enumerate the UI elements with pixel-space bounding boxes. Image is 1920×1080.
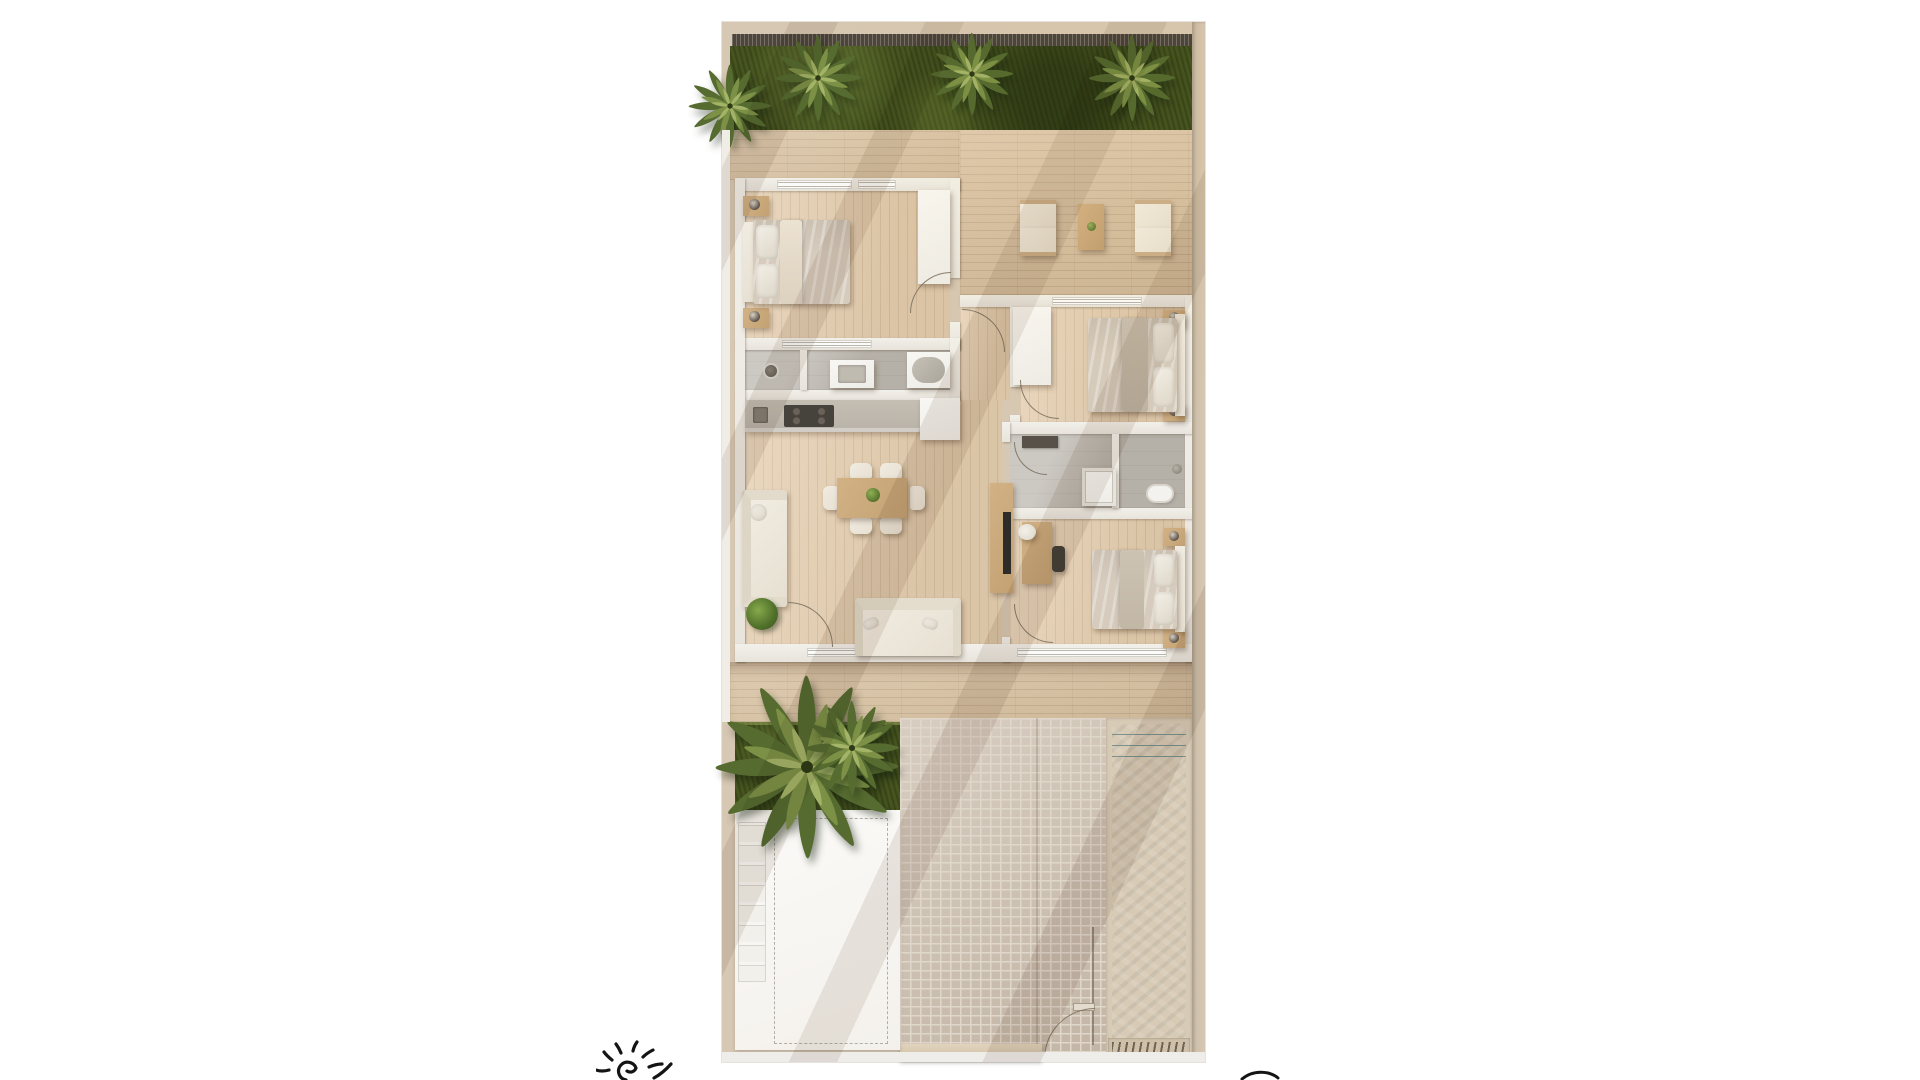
bed-headboard xyxy=(743,222,753,302)
palm-tree-icon xyxy=(688,64,772,148)
dining-chair xyxy=(880,518,902,534)
pool-steps xyxy=(1112,734,1186,758)
pool-water xyxy=(1112,724,1186,1050)
dining-chair xyxy=(850,463,872,479)
pillow xyxy=(1153,323,1174,363)
pillow xyxy=(1154,592,1174,625)
toilet xyxy=(1148,486,1172,501)
throw-blanket xyxy=(1122,318,1148,412)
lot-wall-right xyxy=(1192,22,1205,1062)
sliding-glass-door xyxy=(1017,648,1167,657)
lounge-armchair xyxy=(1020,228,1056,256)
bathtub-basin xyxy=(912,357,945,383)
palm-tree-icon xyxy=(1088,34,1176,122)
dining-chair xyxy=(850,518,872,534)
cooktop xyxy=(784,405,834,427)
table-plant xyxy=(866,488,880,502)
grate-ticks xyxy=(1112,1042,1186,1052)
table-lamp xyxy=(749,199,760,210)
throw-blanket xyxy=(1120,550,1144,629)
wall xyxy=(950,338,960,400)
sofa-pillow xyxy=(750,504,767,521)
lounge-armchair xyxy=(1020,200,1056,228)
lot-edge-bottom xyxy=(722,1052,1205,1062)
table-lamp xyxy=(1169,531,1179,541)
lot-wall-left xyxy=(722,130,730,722)
potted-plant xyxy=(746,598,778,630)
pillow xyxy=(756,264,778,298)
wardrobe xyxy=(1013,307,1051,385)
window xyxy=(782,340,872,348)
shower-drain-icon xyxy=(765,365,777,377)
pillow xyxy=(756,225,778,259)
wardrobe xyxy=(918,190,950,284)
dining-chair xyxy=(823,486,838,510)
tv-screen xyxy=(1003,512,1011,574)
pillow xyxy=(1154,554,1174,587)
desk-chair xyxy=(1018,524,1036,540)
wall xyxy=(950,178,960,278)
wall xyxy=(1002,422,1010,442)
table-lamp xyxy=(749,311,760,322)
window xyxy=(777,180,852,189)
wall xyxy=(800,350,807,390)
lounge-armchair xyxy=(1135,228,1171,256)
table-lamp xyxy=(1169,633,1179,643)
table-plant xyxy=(1087,222,1096,231)
fridge xyxy=(920,398,960,440)
brick-seam xyxy=(1036,718,1038,1060)
floor-plan xyxy=(722,22,1205,1062)
sun-sketch-icon xyxy=(596,1040,676,1080)
dining-chair xyxy=(880,463,902,479)
window xyxy=(1052,297,1142,305)
wall xyxy=(1010,422,1195,434)
throw-blanket xyxy=(780,220,802,304)
wall xyxy=(1010,508,1195,519)
dining-chair xyxy=(910,486,925,510)
window xyxy=(858,180,896,189)
kitchen-sink xyxy=(753,407,768,423)
pen-stroke xyxy=(1238,1066,1282,1080)
side-chair xyxy=(1052,546,1065,572)
palm-tree-icon xyxy=(774,34,862,122)
palm-tree-icon xyxy=(930,32,1014,116)
shower-tray xyxy=(1082,468,1116,506)
lounge-armchair xyxy=(1135,200,1171,228)
pillow xyxy=(1153,367,1174,407)
shower-head-icon xyxy=(1172,464,1182,474)
basin-bowl xyxy=(838,365,866,383)
palm-tree-icon xyxy=(804,700,900,796)
